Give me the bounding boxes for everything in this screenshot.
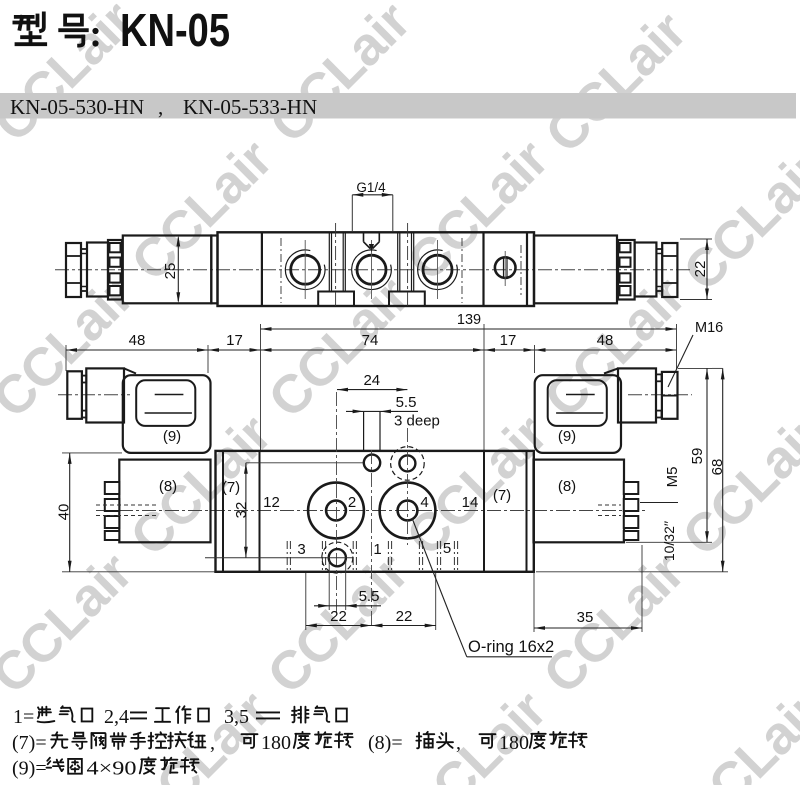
svg-text:2: 2	[348, 494, 356, 511]
svg-text:(9)=: (9)=	[12, 758, 47, 780]
svg-text:40: 40	[56, 504, 73, 521]
svg-text:4×90: 4×90	[87, 758, 137, 780]
svg-text:3,5: 3,5	[224, 706, 249, 728]
svg-text:2,4: 2,4	[104, 706, 129, 728]
svg-text:1: 1	[373, 541, 381, 558]
svg-text:4: 4	[420, 494, 428, 511]
svg-text:17: 17	[226, 332, 243, 349]
svg-text:(8): (8)	[159, 478, 177, 495]
svg-text:180: 180	[261, 732, 291, 754]
svg-text:(7): (7)	[222, 479, 240, 496]
svg-text:74: 74	[362, 332, 379, 349]
svg-text:KN-05-530-HN: KN-05-530-HN	[10, 95, 144, 119]
svg-text:12: 12	[263, 494, 280, 511]
svg-text:(7): (7)	[493, 487, 511, 504]
svg-text:24: 24	[363, 372, 380, 389]
svg-text:5: 5	[443, 540, 451, 557]
svg-text:32: 32	[233, 502, 250, 519]
svg-text:5.5: 5.5	[359, 588, 380, 605]
svg-text:68: 68	[709, 459, 726, 476]
svg-text:22: 22	[330, 608, 347, 625]
svg-text:,: ,	[456, 732, 461, 754]
svg-text:22: 22	[396, 608, 413, 625]
svg-text:180: 180	[499, 732, 529, 754]
svg-text:(8): (8)	[558, 478, 576, 495]
svg-text:25: 25	[162, 263, 179, 280]
svg-text:KN-05: KN-05	[120, 4, 230, 56]
svg-text:(8)=: (8)=	[368, 732, 403, 754]
svg-text:O-ring 16x2: O-ring 16x2	[468, 638, 554, 656]
svg-text:(9): (9)	[558, 428, 576, 445]
svg-text:3 deep: 3 deep	[394, 413, 440, 430]
svg-text:M5: M5	[664, 467, 681, 488]
svg-text:KN-05-533-HN: KN-05-533-HN	[183, 95, 317, 119]
svg-text:,: ,	[158, 95, 163, 119]
svg-text:1=: 1=	[13, 706, 34, 728]
svg-text:35: 35	[577, 609, 594, 626]
svg-text:3: 3	[297, 541, 305, 558]
svg-text:(7)=: (7)=	[12, 732, 47, 754]
svg-text:5.5: 5.5	[396, 394, 417, 411]
svg-text:G1/4: G1/4	[356, 180, 386, 195]
svg-text:,: ,	[210, 732, 215, 754]
svg-text:M16: M16	[695, 320, 723, 336]
svg-text:59: 59	[689, 448, 706, 465]
svg-text:10/32′′: 10/32′′	[661, 520, 677, 561]
svg-text:17: 17	[500, 332, 517, 349]
svg-text:(9): (9)	[163, 428, 181, 445]
svg-text:14: 14	[462, 494, 479, 511]
svg-text:48: 48	[129, 332, 146, 349]
svg-text:22: 22	[692, 261, 709, 278]
svg-text:48: 48	[597, 332, 614, 349]
svg-text:139: 139	[457, 312, 481, 328]
